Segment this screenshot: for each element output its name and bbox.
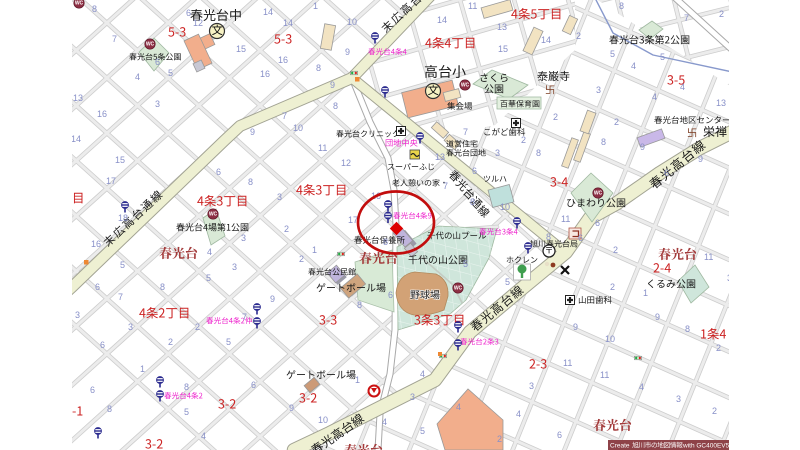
svg-text:8: 8 (333, 101, 338, 111)
svg-text:3: 3 (75, 310, 80, 320)
svg-text:3: 3 (410, 392, 415, 402)
svg-text:15: 15 (498, 44, 508, 54)
svg-text:WC: WC (146, 42, 155, 48)
svg-text:6: 6 (557, 430, 562, 440)
svg-text:17: 17 (348, 215, 358, 225)
svg-text:8: 8 (619, 1, 624, 11)
svg-text:WC: WC (594, 191, 603, 197)
svg-text:6: 6 (90, 385, 95, 395)
svg-text:2: 2 (284, 224, 289, 234)
svg-text:5: 5 (120, 260, 125, 270)
svg-text:6: 6 (595, 218, 600, 228)
svg-text:9: 9 (640, 142, 645, 152)
svg-text:2: 2 (553, 112, 558, 122)
svg-text:7: 7 (242, 312, 247, 322)
svg-text:8: 8 (601, 137, 606, 147)
svg-text:5: 5 (184, 407, 189, 417)
svg-text:8: 8 (546, 232, 551, 242)
svg-text:11: 11 (600, 370, 609, 380)
svg-text:2: 2 (613, 245, 618, 255)
svg-text:5: 5 (226, 337, 231, 347)
svg-text:10: 10 (293, 123, 303, 133)
svg-text:16: 16 (91, 239, 101, 249)
svg-text:2: 2 (299, 254, 304, 264)
svg-text:7: 7 (684, 13, 689, 23)
svg-text:9: 9 (345, 47, 350, 57)
svg-text:6: 6 (388, 290, 393, 300)
svg-text:9: 9 (698, 154, 703, 164)
svg-text:7: 7 (463, 127, 468, 137)
svg-text:12: 12 (193, 18, 203, 28)
svg-text:14: 14 (437, 15, 447, 25)
svg-text:6: 6 (155, 57, 160, 67)
svg-text:2: 2 (497, 434, 502, 444)
svg-text:2: 2 (195, 322, 200, 332)
svg-text:5: 5 (206, 273, 211, 283)
svg-text:4: 4 (207, 247, 212, 257)
svg-text:8: 8 (184, 382, 189, 392)
svg-text:8: 8 (383, 237, 388, 247)
svg-text:13: 13 (497, 22, 507, 32)
svg-text:4: 4 (201, 431, 206, 441)
svg-text:10: 10 (347, 17, 357, 27)
svg-text:9: 9 (655, 312, 660, 322)
svg-text:3: 3 (495, 148, 500, 158)
svg-text:2: 2 (610, 282, 615, 292)
svg-text:3: 3 (155, 99, 160, 109)
svg-text:3: 3 (529, 381, 534, 391)
svg-text:11: 11 (561, 214, 570, 224)
svg-text:4: 4 (420, 369, 425, 379)
svg-text:3: 3 (128, 322, 133, 332)
svg-text:9: 9 (573, 322, 578, 332)
svg-text:1: 1 (643, 288, 648, 298)
svg-text:4: 4 (456, 402, 461, 412)
svg-text:8: 8 (470, 197, 475, 207)
svg-text:1: 1 (140, 364, 145, 374)
svg-text:4: 4 (652, 92, 657, 102)
svg-text:14: 14 (541, 35, 551, 45)
svg-text:17: 17 (106, 176, 116, 186)
svg-text:9: 9 (270, 294, 275, 304)
svg-text:5: 5 (463, 259, 468, 269)
svg-text:9: 9 (250, 127, 255, 137)
svg-text:8: 8 (248, 177, 253, 187)
svg-text:11: 11 (704, 252, 713, 262)
svg-text:6: 6 (95, 282, 100, 292)
svg-text:4: 4 (639, 382, 644, 392)
svg-text:2: 2 (168, 337, 173, 347)
svg-text:10: 10 (605, 334, 615, 344)
svg-text:13: 13 (73, 93, 83, 103)
svg-text:1: 1 (355, 375, 360, 385)
svg-text:2: 2 (719, 9, 724, 19)
svg-text:1: 1 (312, 245, 317, 255)
svg-text:4: 4 (516, 409, 521, 419)
svg-text:WC: WC (461, 83, 470, 89)
svg-text:5: 5 (610, 49, 615, 59)
svg-text:14: 14 (283, 18, 293, 28)
svg-text:9: 9 (330, 80, 335, 90)
svg-text:2: 2 (716, 343, 721, 353)
svg-text:3: 3 (241, 233, 246, 243)
svg-text:5: 5 (420, 426, 425, 436)
svg-text:7: 7 (443, 181, 448, 191)
svg-text:7: 7 (118, 292, 123, 302)
svg-text:5: 5 (168, 68, 173, 78)
svg-text:15: 15 (236, 44, 246, 54)
svg-text:WC: WC (209, 212, 218, 218)
svg-text:18: 18 (118, 213, 128, 223)
svg-text:12: 12 (341, 158, 351, 168)
svg-text:13: 13 (716, 98, 726, 108)
svg-text:Create: Create (610, 443, 630, 450)
svg-text:16: 16 (97, 109, 107, 119)
svg-text:6: 6 (216, 167, 221, 177)
svg-text:6: 6 (186, 8, 191, 18)
svg-text:11: 11 (318, 143, 327, 153)
svg-text:5: 5 (660, 52, 665, 62)
svg-text:8: 8 (160, 282, 165, 292)
svg-text:9: 9 (289, 403, 294, 413)
svg-text:8: 8 (92, 4, 97, 14)
svg-text:6: 6 (100, 340, 105, 350)
svg-text:8: 8 (685, 324, 690, 334)
svg-text:5: 5 (505, 277, 510, 287)
svg-text:11: 11 (563, 358, 572, 368)
svg-text:3: 3 (232, 262, 237, 272)
svg-text:4: 4 (382, 417, 387, 427)
svg-text:8: 8 (316, 63, 321, 73)
svg-text:4: 4 (631, 61, 636, 71)
svg-text:8: 8 (357, 300, 362, 310)
svg-text:16: 16 (278, 55, 288, 65)
svg-text:4: 4 (680, 82, 685, 92)
svg-text:15: 15 (115, 155, 125, 165)
svg-text:3: 3 (676, 394, 681, 404)
svg-text:6: 6 (251, 380, 256, 390)
svg-text:10: 10 (500, 202, 510, 212)
svg-text:WC: WC (454, 286, 463, 292)
svg-text:16: 16 (260, 69, 270, 79)
svg-text:3: 3 (277, 192, 282, 202)
svg-text:8: 8 (107, 404, 112, 414)
svg-text:13: 13 (435, 152, 445, 162)
svg-text:14: 14 (71, 134, 81, 144)
svg-text:1: 1 (313, 1, 318, 11)
svg-text:2: 2 (521, 135, 526, 145)
svg-text:7: 7 (112, 34, 117, 44)
svg-text:2: 2 (576, 31, 581, 41)
svg-text:7: 7 (282, 111, 287, 121)
svg-text:2: 2 (614, 117, 619, 127)
svg-text:6: 6 (578, 233, 583, 243)
svg-text:WC: WC (75, 1, 84, 7)
svg-text:8: 8 (536, 148, 541, 158)
svg-text:4: 4 (135, 72, 140, 82)
svg-text:3: 3 (596, 85, 601, 95)
svg-text:11: 11 (468, 1, 477, 11)
svg-text:6: 6 (664, 168, 669, 178)
svg-text:2: 2 (712, 406, 717, 416)
svg-text:with GC400EV5: with GC400EV5 (682, 443, 730, 450)
svg-text:6: 6 (472, 166, 477, 176)
svg-text:10: 10 (318, 415, 328, 425)
svg-text:14: 14 (263, 7, 273, 17)
